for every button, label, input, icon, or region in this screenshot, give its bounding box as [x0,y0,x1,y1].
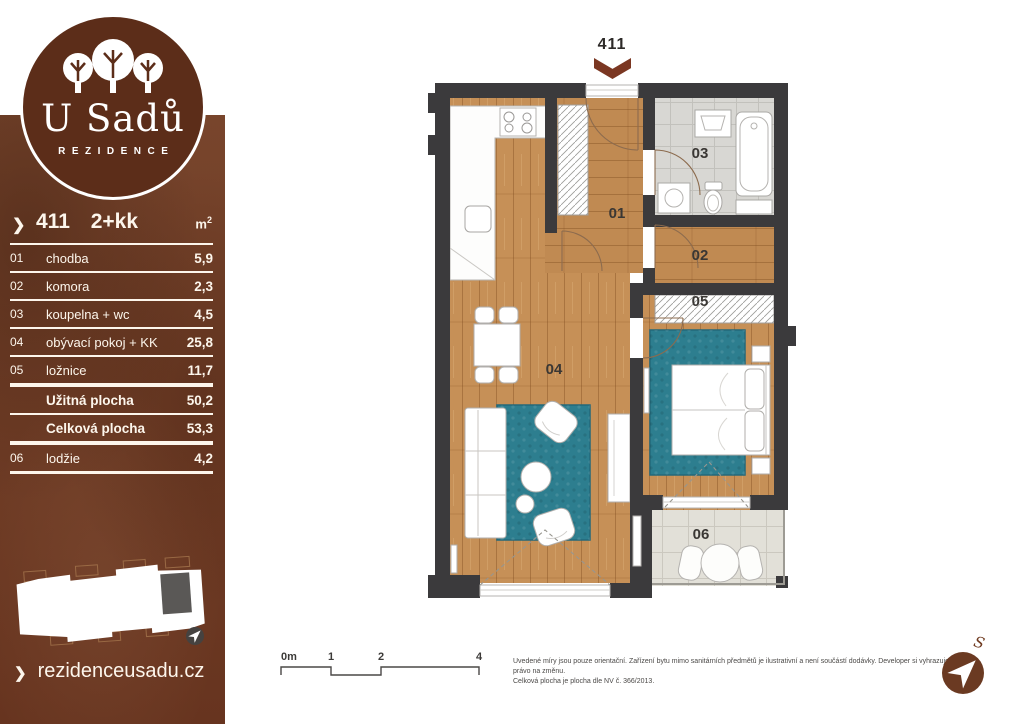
room-name: ložnice [46,363,165,378]
washbasin [695,110,731,137]
logo: U Sadů REZIDENCE [20,14,206,200]
mini-compass-icon [186,627,204,645]
niche [736,200,772,214]
scale-label: 1 [328,651,334,663]
plan-unit-number: 411 [582,36,642,54]
website-link[interactable]: ❯ rezidenceusadu.cz [14,660,204,683]
table-row: 06 lodžie 4,2 [10,445,213,471]
room-number: 05 [10,363,46,377]
logo-subtitle: REZIDENCE [52,146,175,157]
area-unit-label: m2 [195,215,212,231]
nightstand [752,458,770,474]
total-name: Celková plocha [46,421,165,436]
unit-location-marker [160,572,192,614]
toilet-tank [705,182,722,190]
room-area: 4,5 [165,307,213,322]
bedroom-wardrobe [655,295,774,323]
room-label-storage: 02 [692,247,709,264]
compass-icon: S [936,630,1000,700]
total-row: Užitná plocha 50,2 [10,387,213,413]
total-row: Celková plocha 53,3 [10,415,213,441]
total-area: 50,2 [165,393,213,408]
room-number: 03 [10,307,46,321]
room-name: komora [46,279,165,294]
scale-bar: 0m 1 2 4 [279,648,491,682]
toilet [704,190,722,214]
dining-chair [475,307,494,323]
table-row: 02 komora 2,3 [10,273,213,299]
table-row: 05 ložnice 11,7 [10,357,213,383]
scale-label: 2 [378,651,384,663]
unit-layout: 2+kk [91,210,138,234]
pillow [745,369,764,409]
washing-machine [658,183,690,213]
room-area: 25,8 [165,335,213,350]
room-area: 5,9 [165,251,213,266]
room-area: 2,3 [165,279,213,294]
total-name: Užitná plocha [46,393,165,408]
dining-chair [475,367,494,383]
room-label-bathroom: 03 [692,145,709,162]
room-label-hallway: 01 [609,205,626,222]
scale-label: 4 [476,651,483,663]
nightstand [752,346,770,362]
room-area: 11,7 [165,363,213,378]
coffee-table [521,462,551,492]
pillow [745,411,764,451]
room-name: koupelna + wc [46,307,165,322]
disclaimer-line: Celková plocha je plocha dle NV č. 366/2… [513,677,953,687]
sofa [465,408,506,538]
sidebar: U Sadů REZIDENCE ❯ 411 2+kk m2 01 chodba… [0,0,225,724]
table-row: 03 koupelna + wc 4,5 [10,301,213,327]
room-name: chodba [46,251,165,266]
room-area: 4,2 [165,451,213,466]
compass-north-label: S [972,632,987,652]
loggia-table [701,544,739,582]
unit-number: 411 [36,210,70,234]
logo-title: U Sadů [41,99,185,139]
wall-window [633,516,641,566]
room-number: 01 [10,251,46,265]
table-row: 04 obývací pokoj + KK 25,8 [10,329,213,355]
disclaimer-line: Uvedené míry jsou pouze orientační. Zaří… [513,657,953,667]
room-table: 01 chodba 5,9 02 komora 2,3 03 koupelna … [10,243,213,474]
dining-chair [499,307,518,323]
hall-wardrobe [558,105,588,215]
floorplan-sheet: U Sadů REZIDENCE ❯ 411 2+kk m2 01 chodba… [0,0,1024,724]
divider [10,471,213,474]
room-number: 02 [10,279,46,293]
dining-table [474,324,520,366]
trees-icon [53,33,173,97]
radiator [644,368,649,413]
dining-chair [499,367,518,383]
room-label-bedroom: 05 [692,293,709,310]
room-label-loggia: 06 [693,526,710,543]
radiator [451,545,457,573]
tv-stand [608,414,630,502]
side-table [516,495,534,513]
room-number: 06 [10,451,46,465]
disclaimer-line: právo na změnu. [513,667,953,677]
loggia-furniture [677,544,765,582]
scale-label: 0m [281,651,297,663]
building-minimap [10,538,215,650]
room-number: 04 [10,335,46,349]
room-name: lodžie [46,451,165,466]
table-row: 01 chodba 5,9 [10,245,213,271]
room-name: obývací pokoj + KK [46,335,165,350]
website-url: rezidenceusadu.cz [38,660,205,683]
chevron-right-icon: ❯ [14,664,27,682]
disclaimer: Uvedené míry jsou pouze orientační. Zaří… [513,657,953,687]
unit-header: ❯ 411 2+kk m2 [12,210,212,242]
room-label-living: 04 [546,361,563,378]
floor-plan: 01 02 03 04 05 06 [428,58,796,606]
chevron-right-icon: ❯ [12,215,25,235]
kitchen-sink [465,206,491,232]
bathtub [736,112,772,196]
total-area: 53,3 [165,421,213,436]
